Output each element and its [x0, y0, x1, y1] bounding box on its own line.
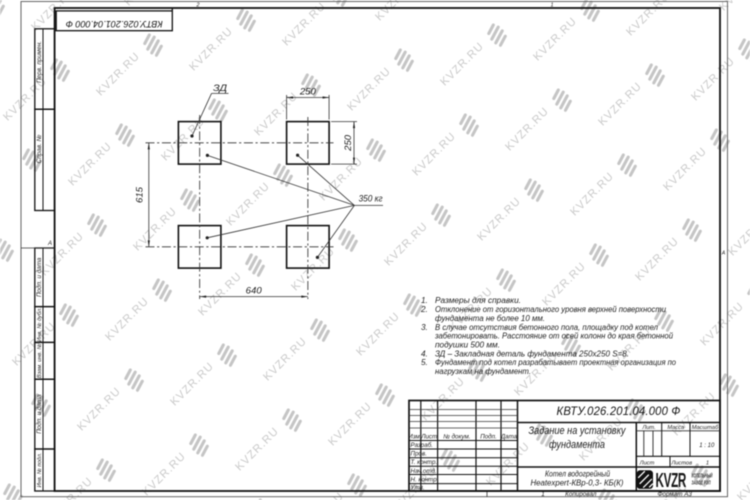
svg-text:350 кг: 350 кг [359, 194, 384, 204]
svg-text:Размеры для справки.: Размеры для справки. [435, 296, 521, 305]
svg-text:250: 250 [343, 135, 353, 152]
svg-text:Фундамент под котел разрабатыв: Фундамент под котел разрабатывает проект… [435, 358, 676, 367]
svg-text:КВТУ.026.201.04.000 Ф: КВТУ.026.201.04.000 Ф [557, 405, 681, 418]
svg-text:Листов: Листов [670, 461, 692, 467]
svg-text:640: 640 [246, 286, 262, 296]
svg-text:Т. контр.: Т. контр. [411, 459, 438, 466]
svg-text:Лит.: Лит. [641, 425, 655, 431]
svg-text:Подп. и дата: Подп. и дата [35, 257, 43, 297]
svg-text:ЗД – Закладная деталь фундамен: ЗД – Закладная деталь фундамента 250х250… [435, 349, 629, 358]
svg-text:Копировал: Копировал [565, 491, 597, 498]
svg-text:615: 615 [134, 186, 144, 203]
svg-text:Формат А3: Формат А3 [657, 491, 692, 498]
svg-text:Масса: Масса [667, 425, 684, 431]
svg-text:забетонировать. Расстояние от: забетонировать. Расстояние от осей колон… [434, 332, 673, 341]
svg-text:2.: 2. [420, 305, 428, 314]
svg-text:В случае отсутствия бетонного: В случае отсутствия бетонного пола, площ… [435, 323, 658, 332]
svg-text:KVZR: KVZR [656, 469, 687, 492]
svg-text:Задание на установку: Задание на установку [529, 425, 626, 437]
svg-text:Heatexpert-КВр-0,3- КБ(К): Heatexpert-КВр-0,3- КБ(К) [531, 477, 624, 487]
svg-text:КВТУ.026.201.04.000 Ф: КВТУ.026.201.04.000 Ф [65, 19, 163, 29]
svg-text:подушки 500 мм.: подушки 500 мм. [435, 340, 500, 349]
svg-text:3.: 3. [421, 323, 428, 332]
svg-text:№ докум.: № докум. [443, 433, 470, 440]
svg-text:Лист: Лист [639, 461, 655, 467]
svg-text:Нач.отд.: Нач.отд. [411, 468, 437, 475]
svg-text:нагрузкам на фундамент.: нагрузкам на фундамент. [435, 367, 531, 376]
svg-text:Разраб.: Разраб. [411, 442, 433, 449]
svg-text:Перв. примен.: Перв. примен. [36, 41, 43, 83]
svg-text:Лист: Лист [420, 433, 437, 440]
svg-text:КОТЕЛЬНЫЙ: КОТЕЛЬНЫЙ [692, 472, 713, 480]
svg-text:Инв. № дубл.: Инв. № дубл. [37, 307, 43, 341]
svg-text:А: А [721, 251, 726, 257]
svg-text:ЗД: ЗД [213, 83, 227, 94]
svg-text:ЗАВОД РЭП: ЗАВОД РЭП [692, 481, 711, 487]
svg-text:1: 1 [550, 2, 553, 8]
svg-text:2: 2 [195, 2, 199, 8]
svg-text:1 : 10: 1 : 10 [699, 442, 714, 449]
svg-text:А: А [47, 241, 52, 247]
svg-text:Изм.: Изм. [408, 433, 421, 440]
svg-text:4.: 4. [421, 349, 428, 358]
svg-text:Справ. №: Справ. № [36, 135, 43, 164]
svg-text:250: 250 [299, 87, 316, 97]
svg-text:Пров.: Пров. [411, 451, 427, 458]
svg-text:Инв. № подл.: Инв. № подл. [37, 453, 43, 488]
svg-text:фундамента не более 10 мм.: фундамента не более 10 мм. [435, 314, 545, 323]
svg-text:Дата: Дата [500, 433, 518, 440]
svg-text:фундамента: фундамента [549, 439, 605, 451]
svg-text:Взам. инв. №: Взам. инв. № [37, 343, 43, 378]
svg-text:Подп.: Подп. [480, 433, 496, 440]
svg-text:Отклонение от горизонтального: Отклонение от горизонтального уровня вер… [435, 305, 666, 314]
svg-text:1: 1 [706, 461, 709, 467]
svg-text:Подп. и дата: Подп. и дата [35, 394, 43, 434]
svg-text:1.: 1. [421, 296, 428, 305]
svg-text:Масштаб: Масштаб [692, 425, 719, 431]
svg-text:Н. контр.: Н. контр. [411, 476, 439, 483]
svg-text:5.: 5. [421, 358, 428, 367]
svg-text:1: 1 [541, 491, 545, 498]
svg-text:Утв.: Утв. [410, 485, 425, 492]
